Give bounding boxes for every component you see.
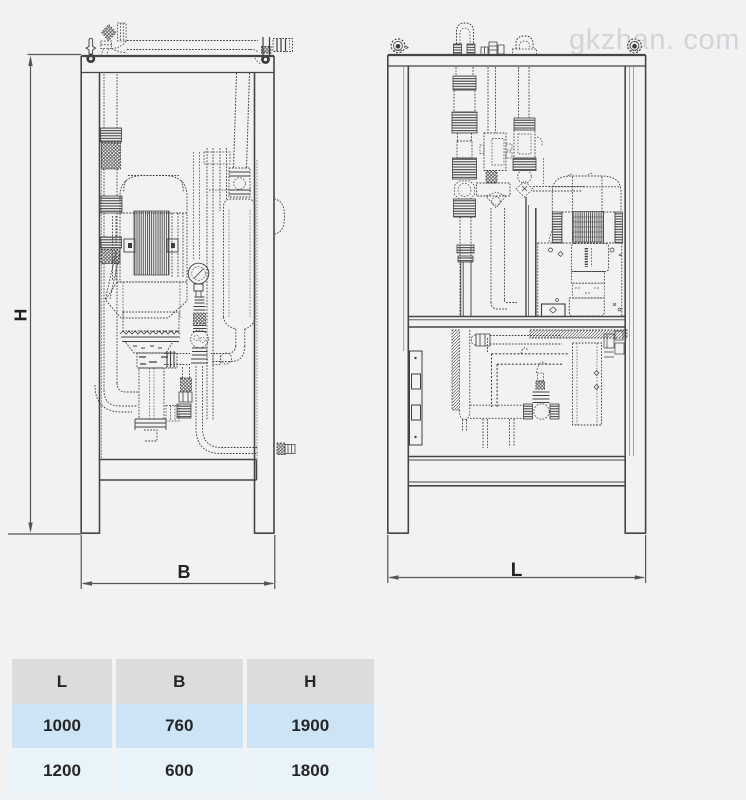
svg-text:L: L xyxy=(511,560,523,581)
svg-text:B: B xyxy=(178,562,191,582)
svg-text:H: H xyxy=(11,309,31,322)
